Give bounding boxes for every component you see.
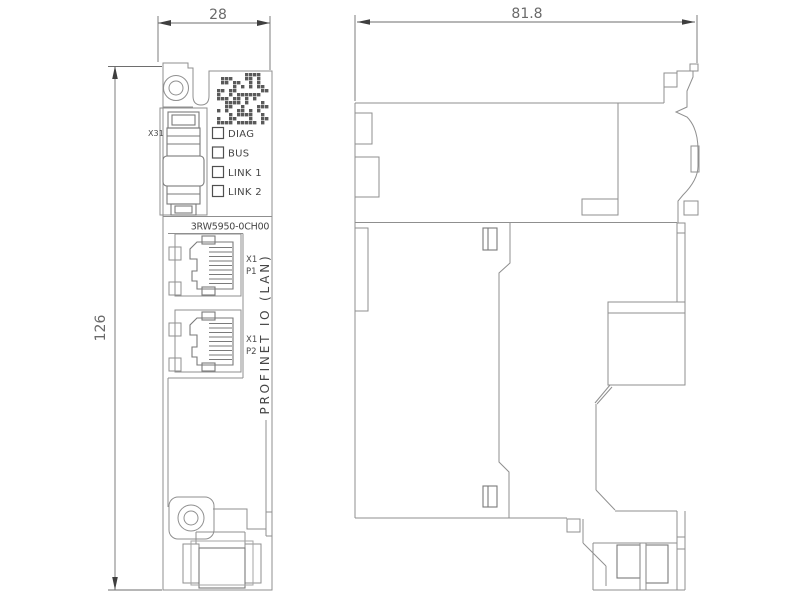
front-width-value: 28 [209,7,227,23]
terminal-block-side [567,519,685,590]
led-link1-label: LINK 1 [228,168,262,179]
led-link2-label: LINK 2 [228,187,262,198]
din-rail-profile [595,223,685,590]
side-depth-value: 81.8 [511,6,542,22]
side-outline [355,64,698,518]
led-bus [213,147,224,158]
port2-id: X1 [246,335,257,345]
x31-connector [160,108,207,215]
terminal-block-front [183,532,261,588]
led-diag [213,128,224,139]
top-screw [163,76,193,108]
rj45-port-2: X1 P2 [169,310,257,372]
technical-drawing-page: 28 126 [0,0,800,600]
dimension-front-height: 126 [93,66,162,590]
dimension-front-width: 28 [158,7,270,70]
profinet-interface-label: PROFINET IO (LAN) [258,253,272,414]
data-matrix-code [217,73,268,124]
front-lower-body [168,378,272,536]
dimension-side-depth: 81.8 [355,6,697,101]
dimension-drawing: 28 126 [0,0,800,600]
x31-label: X31 [148,129,164,138]
led-diag-label: DIAG [228,129,254,140]
led-link2 [213,186,224,197]
din-rail-hook [676,71,699,223]
bottom-screw [169,497,214,539]
front-height-value: 126 [93,315,109,342]
rj45-port-1: X1 P1 [169,234,257,296]
port1-id: X1 [246,255,257,265]
led-link1 [213,167,224,178]
led-bus-label: BUS [228,149,249,160]
side-internal [355,103,677,518]
led-indicators: DIAG BUS LINK 1 LINK 2 [213,128,262,199]
front-outline [163,63,272,590]
product-code-label: 3RW5950-0CH00 [191,222,270,233]
side-view: 81.8 [355,6,699,590]
port2-name: P2 [246,347,257,357]
front-view: 28 126 [93,7,272,590]
port1-name: P1 [246,267,257,277]
